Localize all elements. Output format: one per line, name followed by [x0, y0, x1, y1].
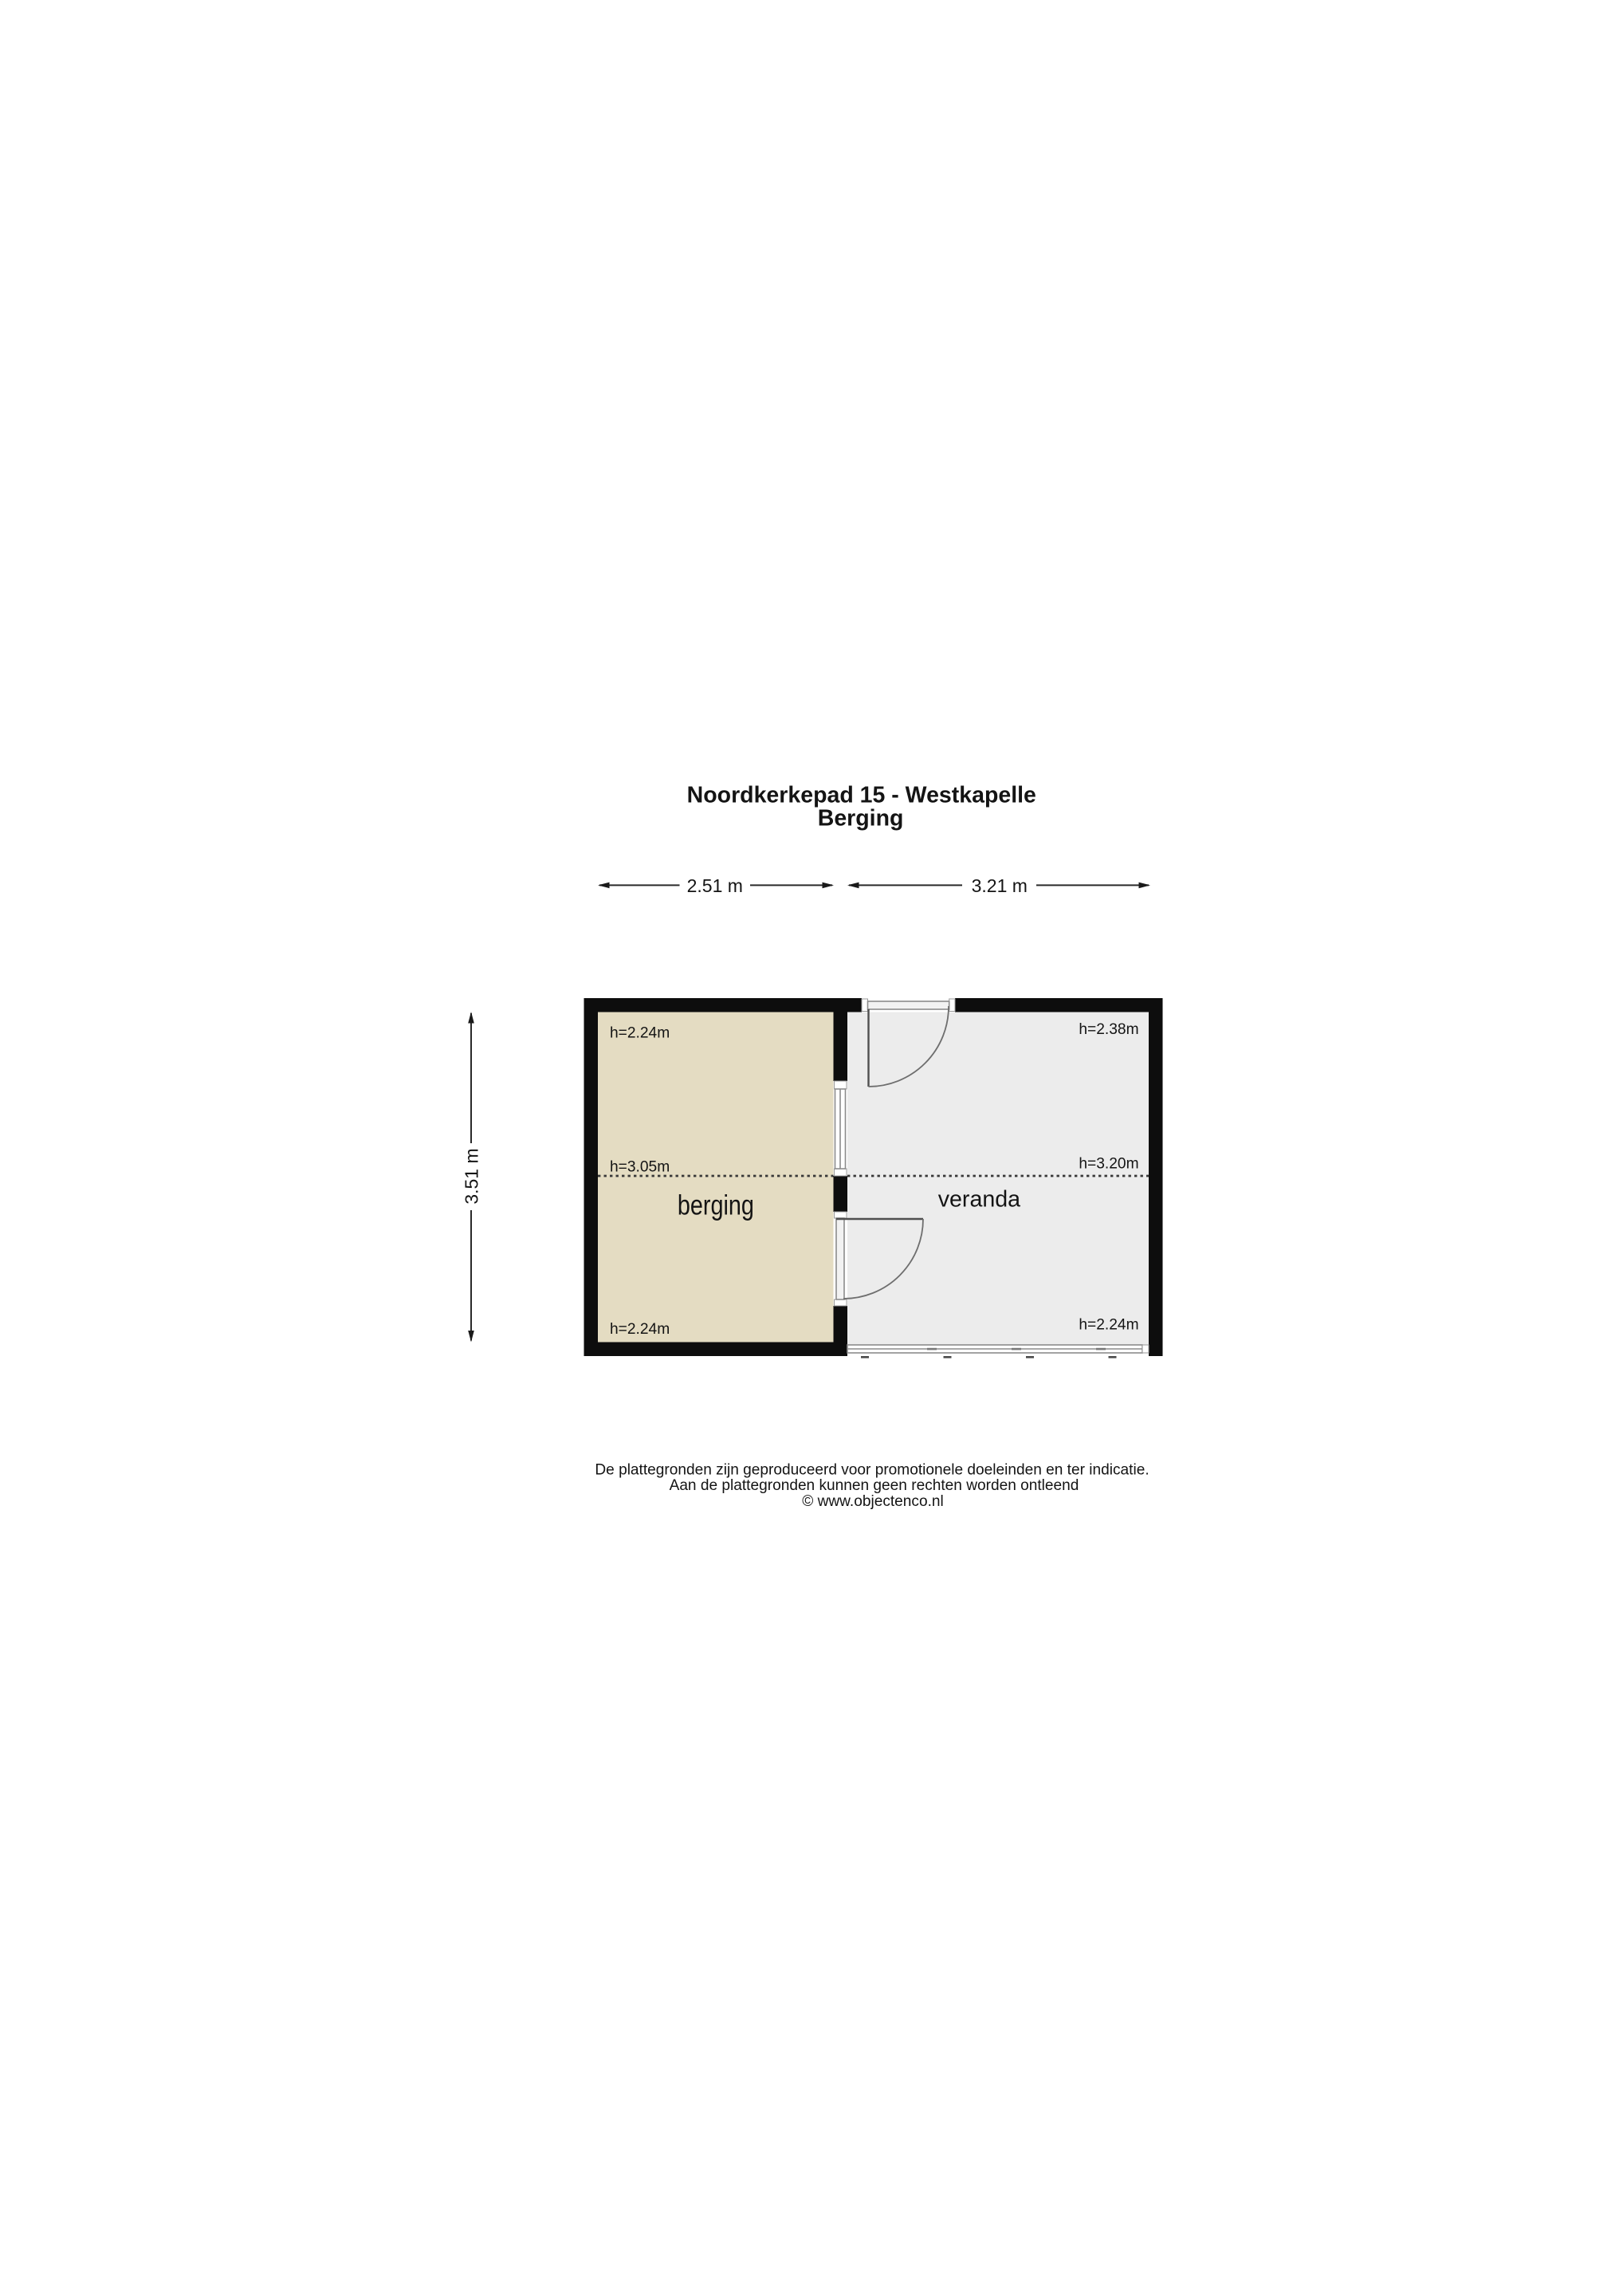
svg-text:© www.objectenco.nl: © www.objectenco.nl — [802, 1493, 944, 1510]
svg-text:h=2.24m: h=2.24m — [610, 1025, 670, 1042]
svg-text:h=3.05m: h=3.05m — [610, 1159, 670, 1176]
svg-text:h=2.24m: h=2.24m — [610, 1321, 670, 1338]
svg-text:Berging: Berging — [818, 806, 904, 832]
svg-text:veranda: veranda — [938, 1187, 1020, 1213]
svg-text:Aan de plattegronden kunnen ge: Aan de plattegronden kunnen geen rechten… — [670, 1477, 1079, 1494]
svg-text:h=2.38m: h=2.38m — [1079, 1021, 1138, 1038]
svg-text:Noordkerkepad 15 - Westkapelle: Noordkerkepad 15 - Westkapelle — [687, 783, 1036, 808]
svg-text:berging: berging — [678, 1189, 754, 1221]
svg-text:h=2.24m: h=2.24m — [1079, 1316, 1138, 1333]
svg-text:De plattegronden zijn geproduc: De plattegronden zijn geproduceerd voor … — [595, 1462, 1149, 1479]
svg-text:h=3.20m: h=3.20m — [1079, 1155, 1138, 1172]
svg-text:3.21 m: 3.21 m — [972, 875, 1028, 896]
svg-text:3.51 m: 3.51 m — [462, 1148, 482, 1204]
svg-text:2.51 m: 2.51 m — [687, 875, 743, 896]
